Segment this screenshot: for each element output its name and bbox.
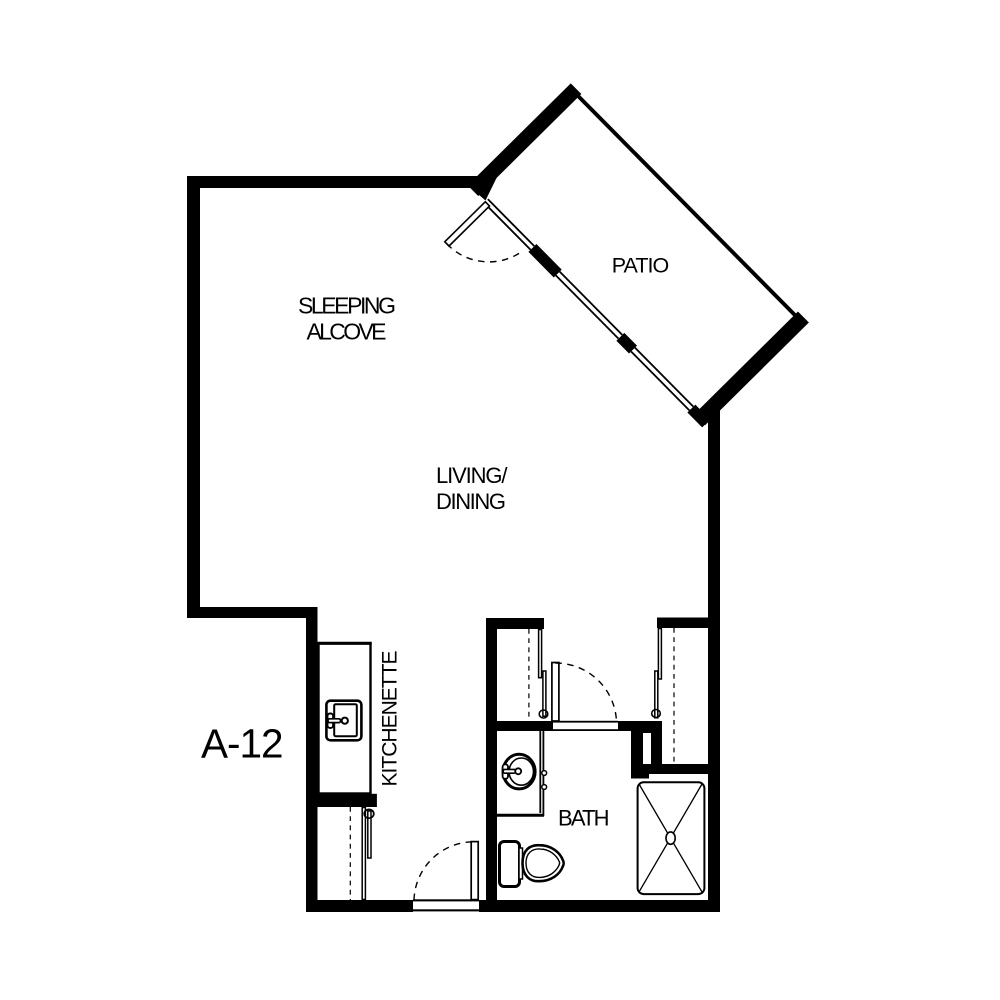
svg-text:SLEEPING: SLEEPING bbox=[298, 293, 396, 319]
svg-text:DINING: DINING bbox=[436, 489, 506, 514]
svg-text:LIVING/: LIVING/ bbox=[436, 463, 508, 488]
svg-text:A-12: A-12 bbox=[201, 721, 284, 767]
svg-text:PATIO: PATIO bbox=[612, 254, 670, 278]
svg-text:KITCHENETTE: KITCHENETTE bbox=[379, 651, 402, 787]
svg-text:BATH: BATH bbox=[558, 806, 610, 831]
svg-text:ALCOVE: ALCOVE bbox=[307, 319, 387, 345]
